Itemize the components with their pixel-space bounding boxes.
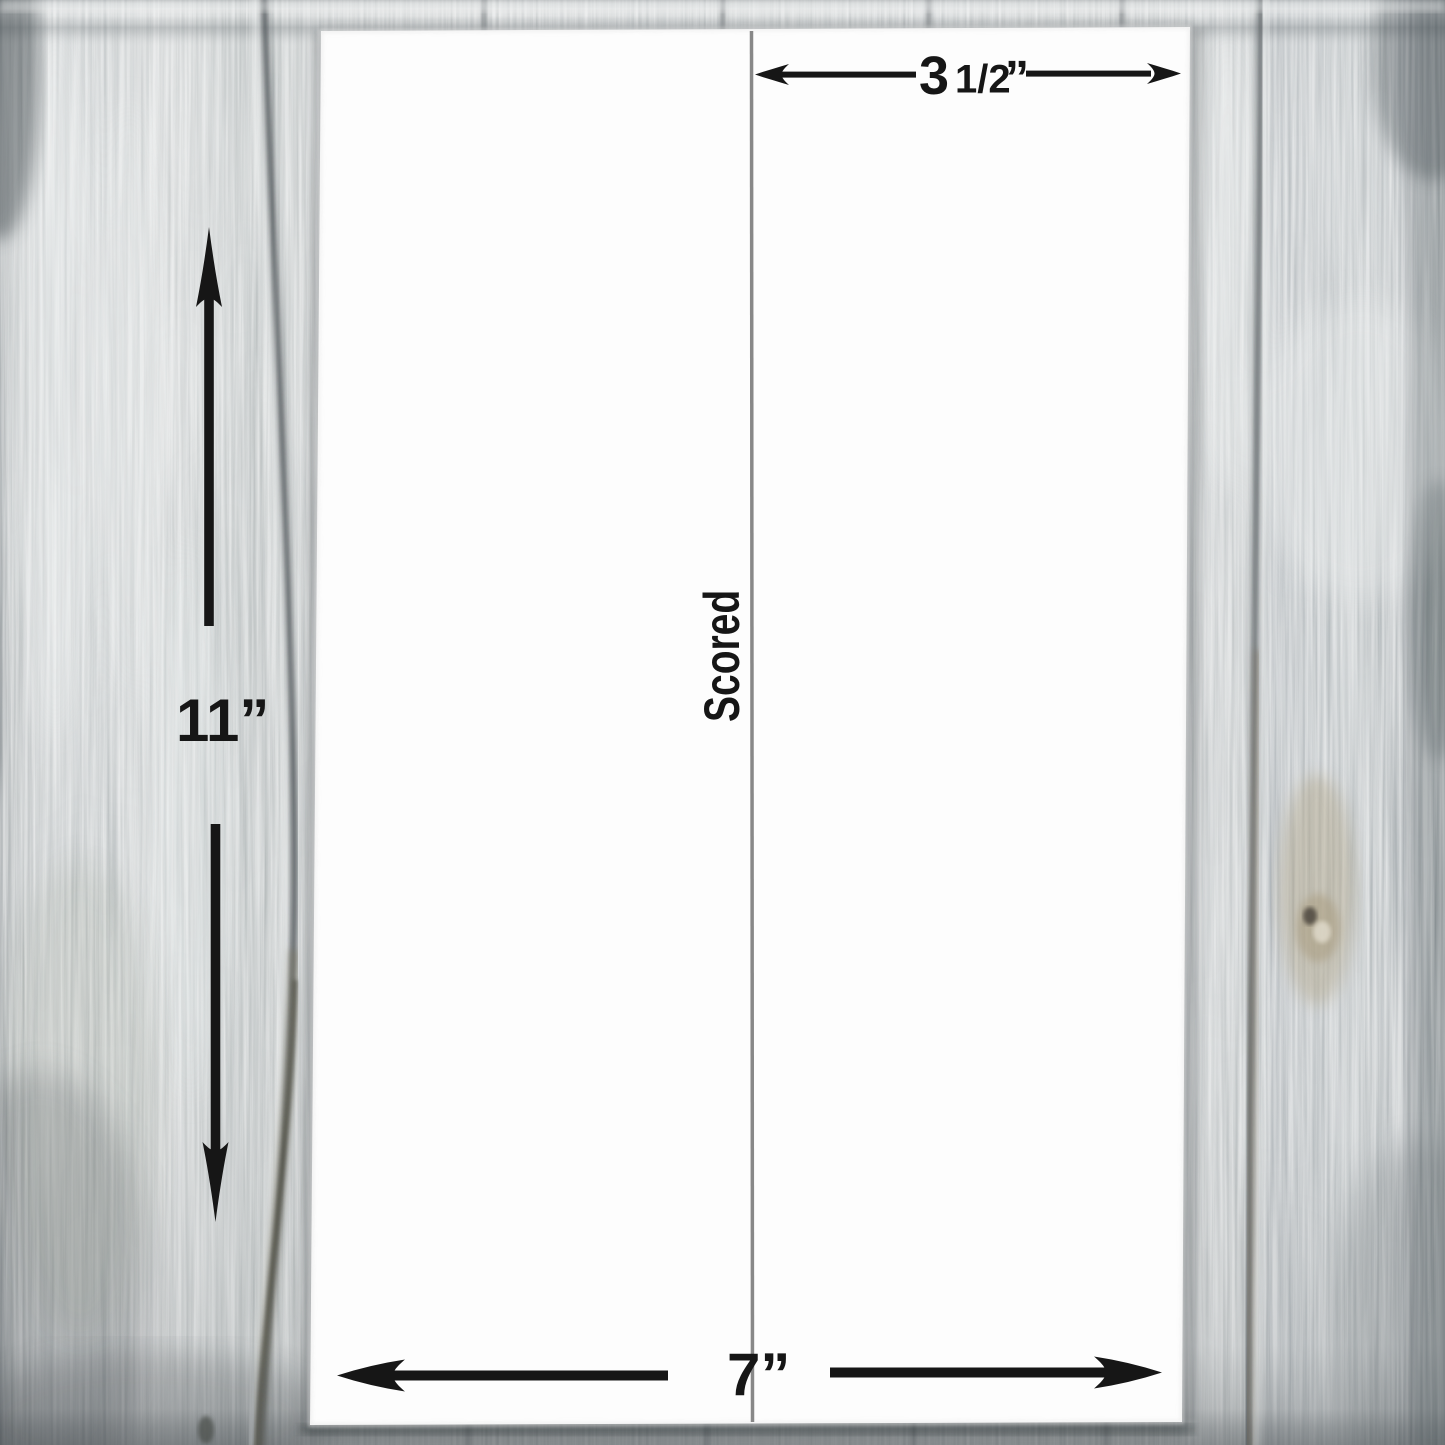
svg-text:11”: 11” xyxy=(176,687,269,754)
svg-text:7”: 7” xyxy=(727,1341,790,1408)
svg-text:Scored: Scored xyxy=(693,590,750,722)
